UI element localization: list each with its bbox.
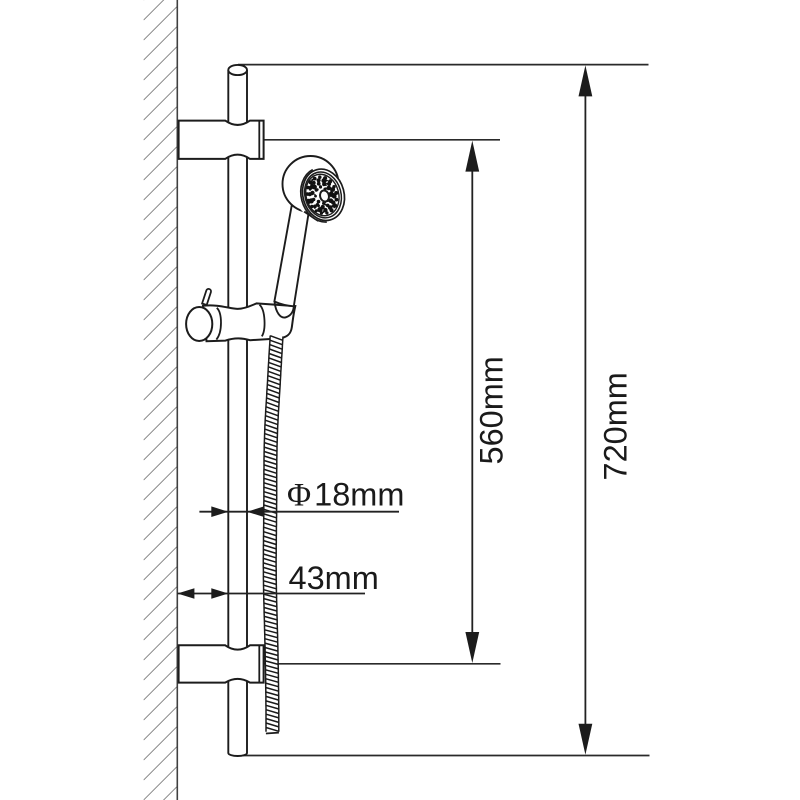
svg-text:560mm: 560mm [474,356,510,464]
svg-text:Φ18mm: Φ18mm [287,477,404,514]
svg-text:43mm: 43mm [289,560,379,596]
svg-text:720mm: 720mm [598,372,634,480]
